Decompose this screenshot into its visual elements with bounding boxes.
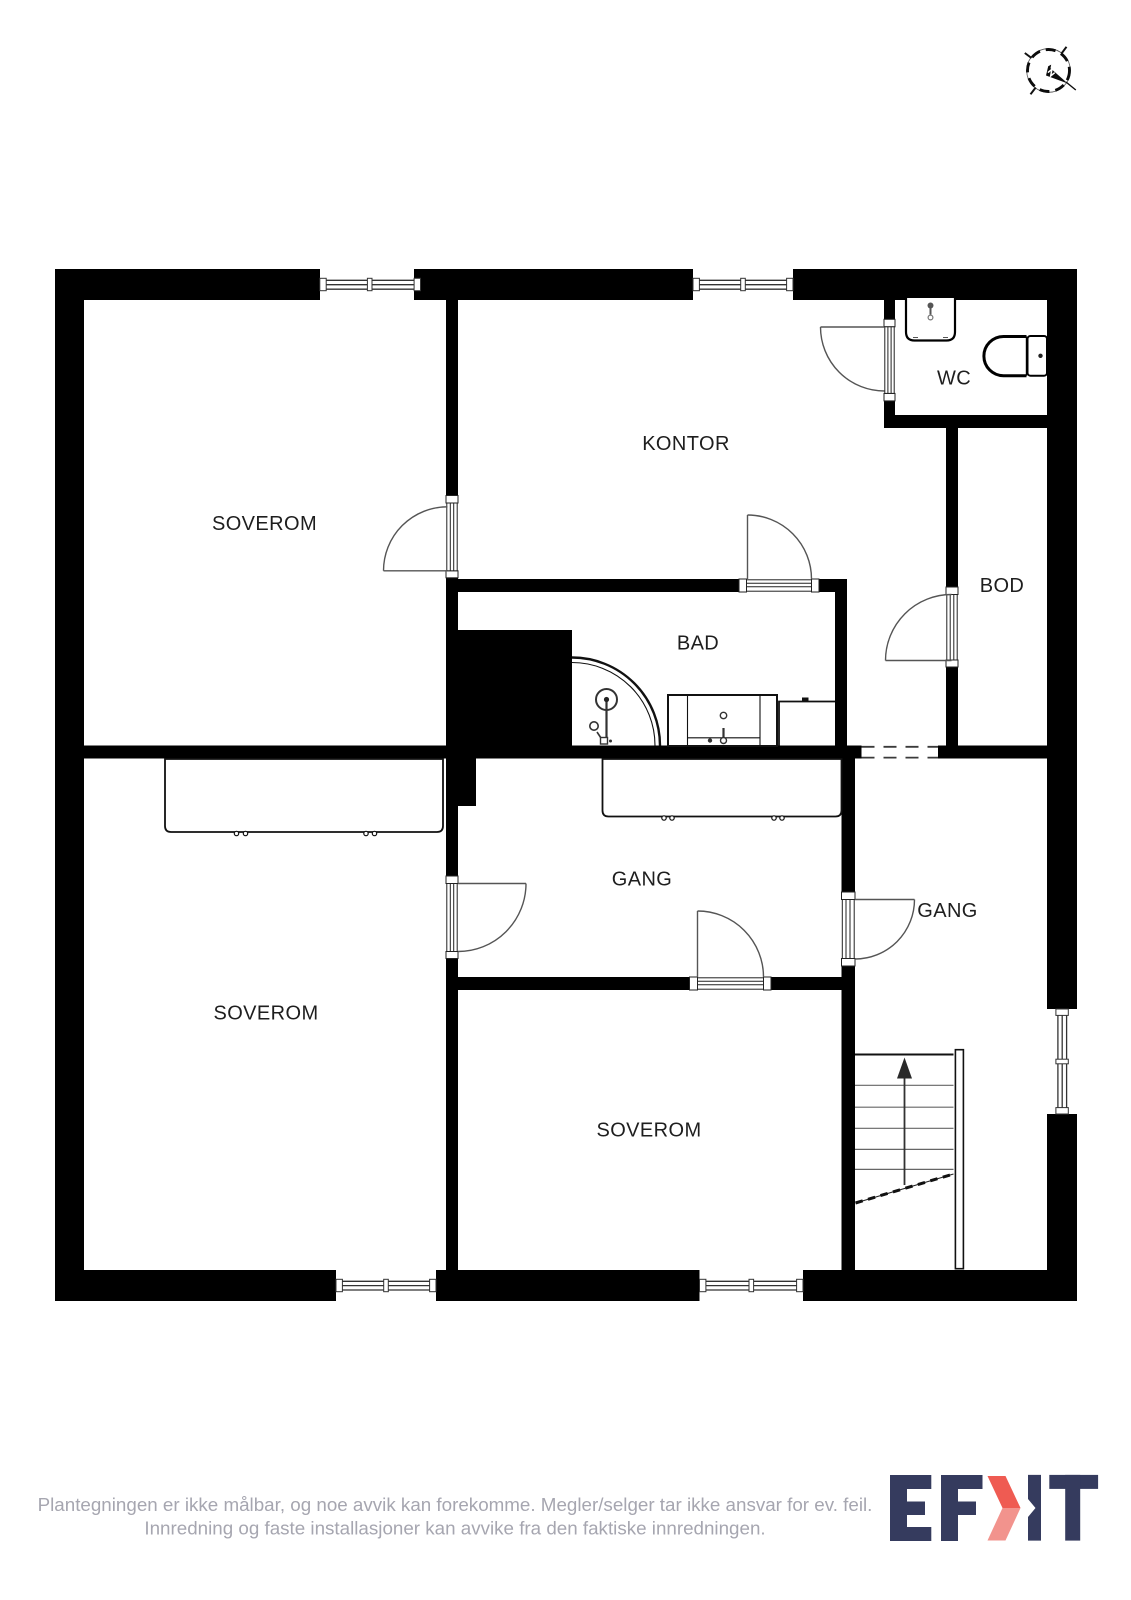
svg-text:KONTOR: KONTOR: [642, 433, 730, 455]
svg-text:Plantegningen er ikke målbar,: Plantegningen er ikke målbar, og noe avv…: [38, 1494, 873, 1515]
svg-text:SOVEROM: SOVEROM: [596, 1120, 701, 1142]
svg-text:GANG: GANG: [917, 900, 978, 922]
svg-text:SOVEROM: SOVEROM: [213, 1003, 318, 1025]
svg-text:BAD: BAD: [677, 633, 719, 655]
svg-text:SOVEROM: SOVEROM: [212, 513, 317, 535]
svg-text:WC: WC: [937, 368, 971, 390]
svg-text:BOD: BOD: [980, 575, 1025, 597]
svg-text:Innredning og faste installasj: Innredning og faste installasjoner kan a…: [144, 1518, 765, 1539]
svg-text:GANG: GANG: [612, 869, 673, 891]
